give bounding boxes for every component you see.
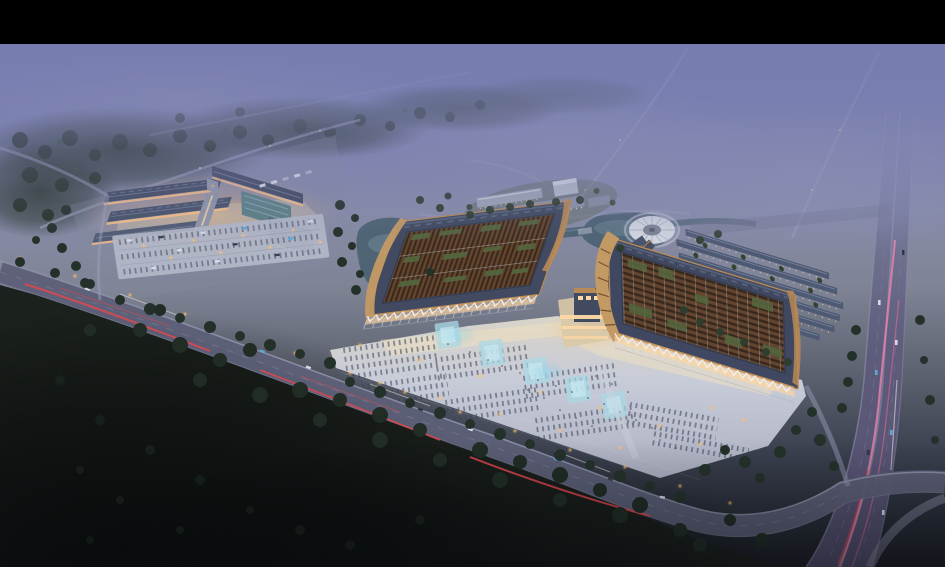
letterbox-top-bar xyxy=(0,0,945,44)
scene-svg xyxy=(0,0,945,567)
architectural-rendering xyxy=(0,0,945,567)
